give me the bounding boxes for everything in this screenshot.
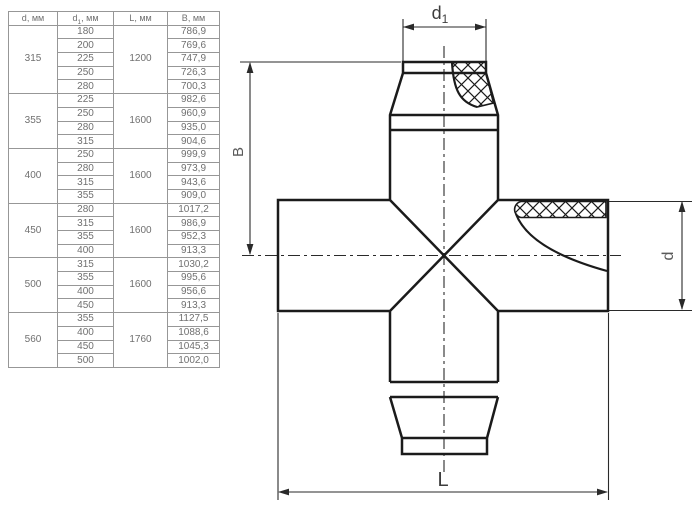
cell-L: 1600 [114, 148, 168, 203]
cell-d1: 400 [58, 326, 114, 340]
table-row: 45028016001017,2 [9, 203, 220, 217]
column-header: d1, мм [58, 12, 114, 26]
table-row: 3552251600982,6 [9, 94, 220, 108]
cell-B: 786,9 [168, 25, 220, 39]
cell-B: 700,3 [168, 80, 220, 94]
cell-B: 726,3 [168, 66, 220, 80]
dimensions-table: d, ммd1, ммL, ммB, мм3151801200786,92007… [8, 11, 220, 368]
cell-d1: 225 [58, 53, 114, 67]
cell-d1: 355 [58, 189, 114, 203]
cell-d: 400 [9, 148, 58, 203]
dim-L-label: L [437, 469, 448, 491]
cell-d1: 250 [58, 107, 114, 121]
cell-d1: 280 [58, 162, 114, 176]
d1-arrow-right [475, 24, 486, 31]
cell-B: 960,9 [168, 107, 220, 121]
d1-arrow-left [403, 24, 414, 31]
dim-d-label: d [660, 252, 677, 261]
cell-d1: 250 [58, 148, 114, 162]
cell-L: 1600 [114, 203, 168, 258]
cell-B: 1002,0 [168, 354, 220, 368]
cell-B: 904,6 [168, 135, 220, 149]
cell-d1: 180 [58, 25, 114, 39]
dimensions-table-body: d, ммd1, ммL, ммB, мм3151801200786,92007… [9, 12, 220, 368]
fitting-outline [278, 62, 608, 454]
cell-B: 769,6 [168, 39, 220, 53]
cell-B: 999,9 [168, 148, 220, 162]
L-arrow-left [278, 489, 289, 496]
cell-B: 935,0 [168, 121, 220, 135]
column-header: B, мм [168, 12, 220, 26]
cell-d1: 500 [58, 354, 114, 368]
cell-B: 1045,3 [168, 340, 220, 354]
table-header-row: d, ммd1, ммL, ммB, мм [9, 12, 220, 26]
cell-B: 1030,2 [168, 258, 220, 272]
B-arrow-top [247, 62, 254, 73]
L-arrow-right [597, 489, 608, 496]
table-row: 56035517601127,5 [9, 313, 220, 327]
cell-L: 1200 [114, 25, 168, 93]
pipe-cross-fitting-datasheet: d, ммd1, ммL, ммB, мм3151801200786,92007… [0, 0, 700, 514]
cell-d: 315 [9, 25, 58, 93]
cell-d1: 315 [58, 135, 114, 149]
cell-B: 1127,5 [168, 313, 220, 327]
cell-d1: 250 [58, 66, 114, 80]
cell-d: 560 [9, 313, 58, 368]
cell-L: 1600 [114, 258, 168, 313]
cell-B: 909,0 [168, 189, 220, 203]
cell-d1: 355 [58, 313, 114, 327]
B-arrow-bottom [247, 244, 254, 255]
cell-d: 355 [9, 94, 58, 149]
cell-d: 450 [9, 203, 58, 258]
cell-d1: 225 [58, 94, 114, 108]
cell-B: 956,6 [168, 285, 220, 299]
right-socket-seal-hatch [515, 202, 606, 218]
cell-B: 1017,2 [168, 203, 220, 217]
cell-d1: 450 [58, 340, 114, 354]
cell-B: 913,3 [168, 299, 220, 313]
dimension-L: L [278, 313, 609, 500]
table-row: 4002501600999,9 [9, 148, 220, 162]
cell-d1: 280 [58, 203, 114, 217]
cell-d1: 400 [58, 244, 114, 258]
dimension-B: B [230, 62, 401, 255]
cell-d1: 400 [58, 285, 114, 299]
cell-d1: 355 [58, 272, 114, 286]
column-header: d, мм [9, 12, 58, 26]
cell-d: 500 [9, 258, 58, 313]
d-extension-lines [609, 202, 692, 311]
table-row: 50031516001030,2 [9, 258, 220, 272]
column-header: L, мм [114, 12, 168, 26]
cell-B: 1088,6 [168, 326, 220, 340]
cell-d1: 315 [58, 217, 114, 231]
right-socket-seal-curve [516, 214, 607, 271]
cell-d1: 315 [58, 176, 114, 190]
cell-B: 913,3 [168, 244, 220, 258]
cell-B: 982,6 [168, 94, 220, 108]
cell-d1: 355 [58, 231, 114, 245]
cell-L: 1760 [114, 313, 168, 368]
cell-d1: 200 [58, 39, 114, 53]
top-socket-seal-hatch [452, 62, 494, 107]
dim-d1-label: d1 [432, 3, 449, 26]
table-row: 3151801200786,9 [9, 25, 220, 39]
d-arrow-top [679, 201, 686, 212]
cell-B: 973,9 [168, 162, 220, 176]
cell-B: 943,6 [168, 176, 220, 190]
cell-L: 1600 [114, 94, 168, 149]
dim-B-label: B [230, 147, 247, 157]
cell-d1: 280 [58, 121, 114, 135]
cell-B: 995,6 [168, 272, 220, 286]
cell-d1: 315 [58, 258, 114, 272]
cell-B: 986,9 [168, 217, 220, 231]
dimension-d: d [609, 201, 692, 311]
cell-d1: 450 [58, 299, 114, 313]
cell-B: 747,9 [168, 53, 220, 67]
cell-B: 952,3 [168, 231, 220, 245]
d-arrow-bottom [679, 299, 686, 310]
cell-d1: 280 [58, 80, 114, 94]
